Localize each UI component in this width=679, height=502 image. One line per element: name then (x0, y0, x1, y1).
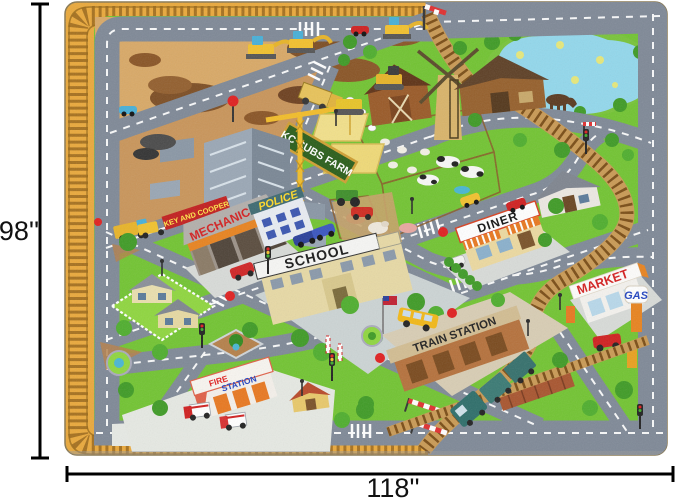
svg-text:118'': 118'' (366, 473, 419, 502)
svg-text:98'': 98'' (0, 216, 39, 246)
